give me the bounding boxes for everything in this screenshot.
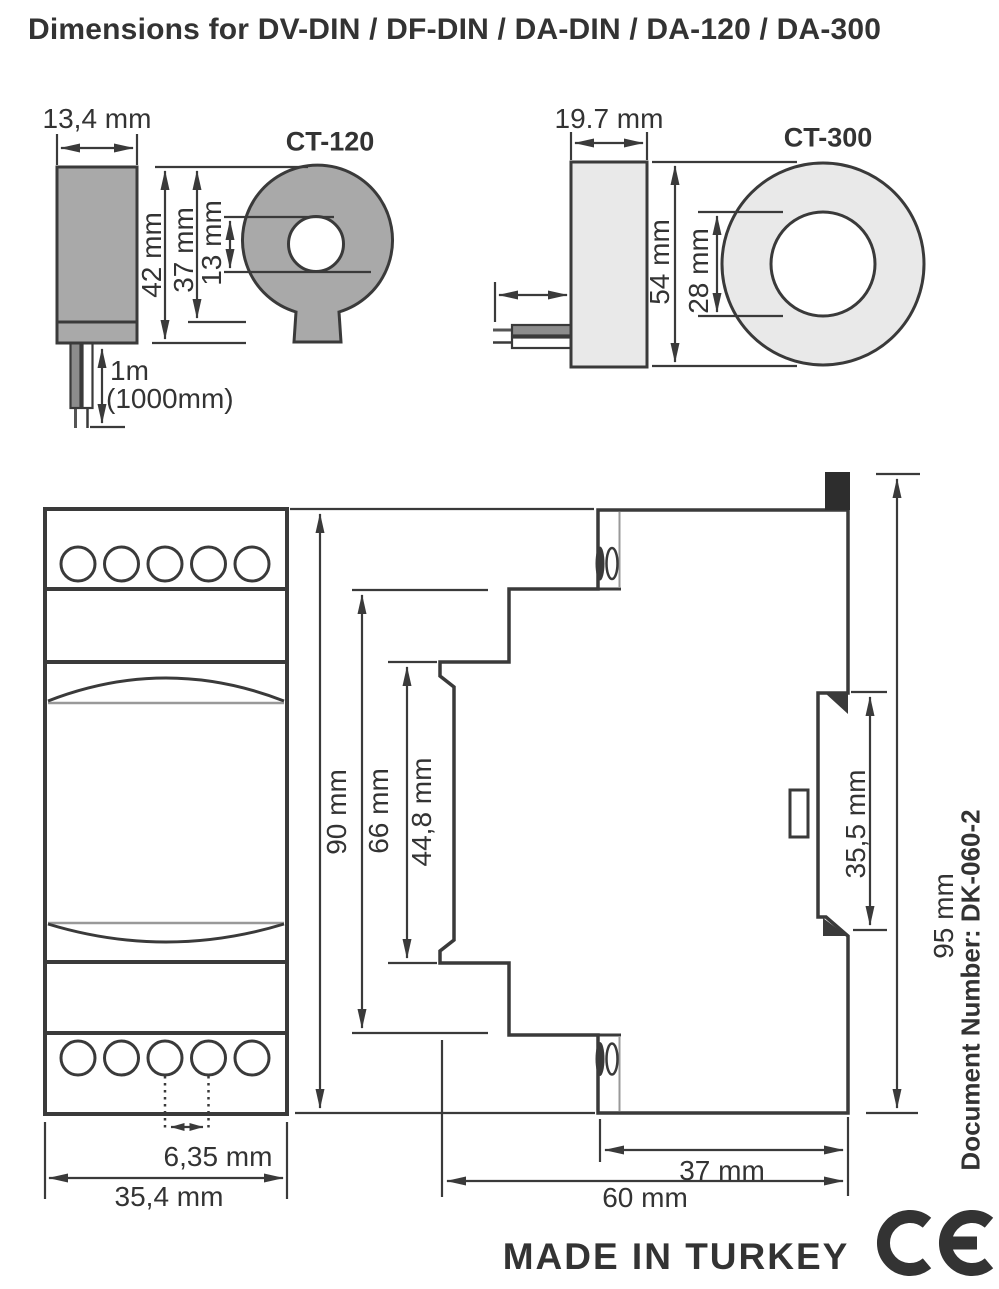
module-front-section-dim: 44,8 mm: [406, 758, 438, 867]
ct120-hole-dim: 13 mm: [196, 200, 228, 286]
terminal-slot-dark-top: [596, 547, 605, 581]
module-front-width-dim: 35,4 mm: [115, 1181, 224, 1213]
module-front-height-dim: 90 mm: [321, 769, 353, 855]
rail-hook-slot: [790, 790, 808, 837]
ce-mark-icon: [883, 1217, 989, 1270]
din-rail-clip: [825, 472, 850, 510]
ct120-height-dim: 42 mm: [136, 212, 168, 298]
module-total-depth-dim: 60 mm: [602, 1182, 688, 1214]
page-title: Dimensions for DV-DIN / DF-DIN / DA-DIN …: [28, 13, 881, 47]
ct300-width-dim: 19.7 mm: [555, 103, 664, 135]
ct300-ring-dim: 54 mm: [644, 219, 676, 305]
ct120-cable-length-mm: (1000mm): [106, 383, 234, 415]
ct120-front-view: [243, 165, 393, 342]
ct120-width-dim: 13,4 mm: [43, 103, 152, 135]
module-body-height-dim: 66 mm: [363, 768, 395, 854]
module-side-view: [440, 472, 850, 1113]
module-terminal-pitch-dim: 6,35 mm: [164, 1141, 273, 1173]
document-number: Document Number: DK-060-2: [956, 809, 987, 1170]
ct300-label: CT-300: [784, 123, 873, 154]
dimension-drawing: [0, 0, 999, 1289]
ct300-side-view: [493, 162, 647, 367]
ct300-front-view: [722, 163, 924, 365]
terminal-slot-dark-bottom: [596, 1042, 605, 1076]
rail-notch-top: [825, 693, 848, 714]
module-front-view: [45, 509, 287, 1114]
module-rear-depth-dim: 37 mm: [679, 1155, 765, 1187]
module-rail-recess-dim: 35,5 mm: [840, 770, 872, 879]
dimension-sheet: Dimensions for DV-DIN / DF-DIN / DA-DIN …: [0, 0, 999, 1289]
ct120-label: CT-120: [286, 127, 375, 158]
ct300-hole-dim: 28 mm: [683, 228, 715, 314]
made-in-label: MADE IN TURKEY: [503, 1236, 850, 1278]
